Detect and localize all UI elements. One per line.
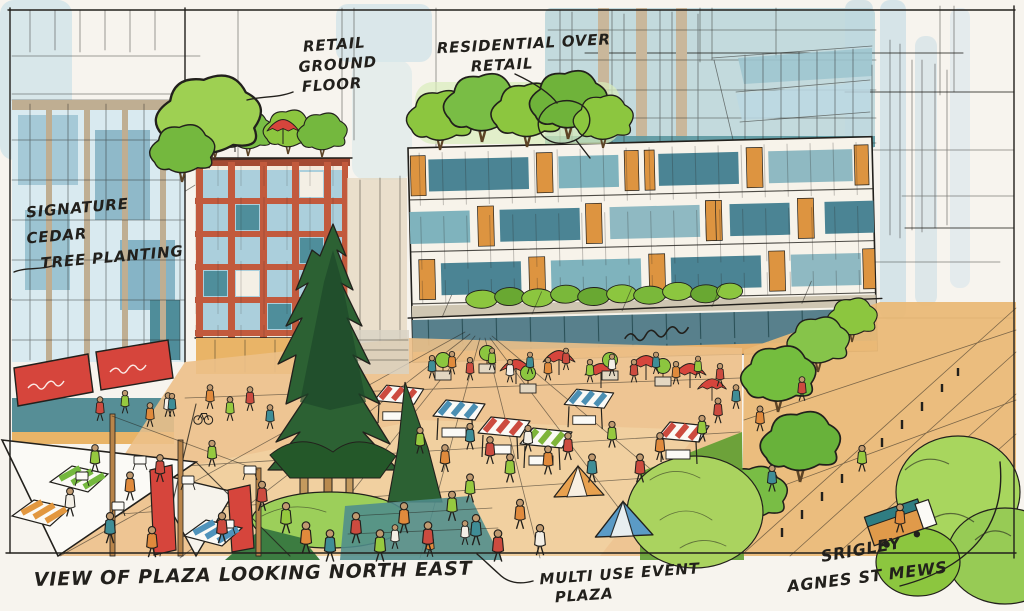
- plaza-perspective-sketch: RETAIL GROUND FLOOR RESIDENTIAL OVER RET…: [0, 0, 1024, 611]
- red-banner-2: [228, 485, 254, 552]
- svg-text:RETAIL: RETAIL: [470, 54, 533, 75]
- architectural-sketch-page: RETAIL GROUND FLOOR RESIDENTIAL OVER RET…: [0, 0, 1024, 611]
- rooftop-trees: [406, 71, 633, 150]
